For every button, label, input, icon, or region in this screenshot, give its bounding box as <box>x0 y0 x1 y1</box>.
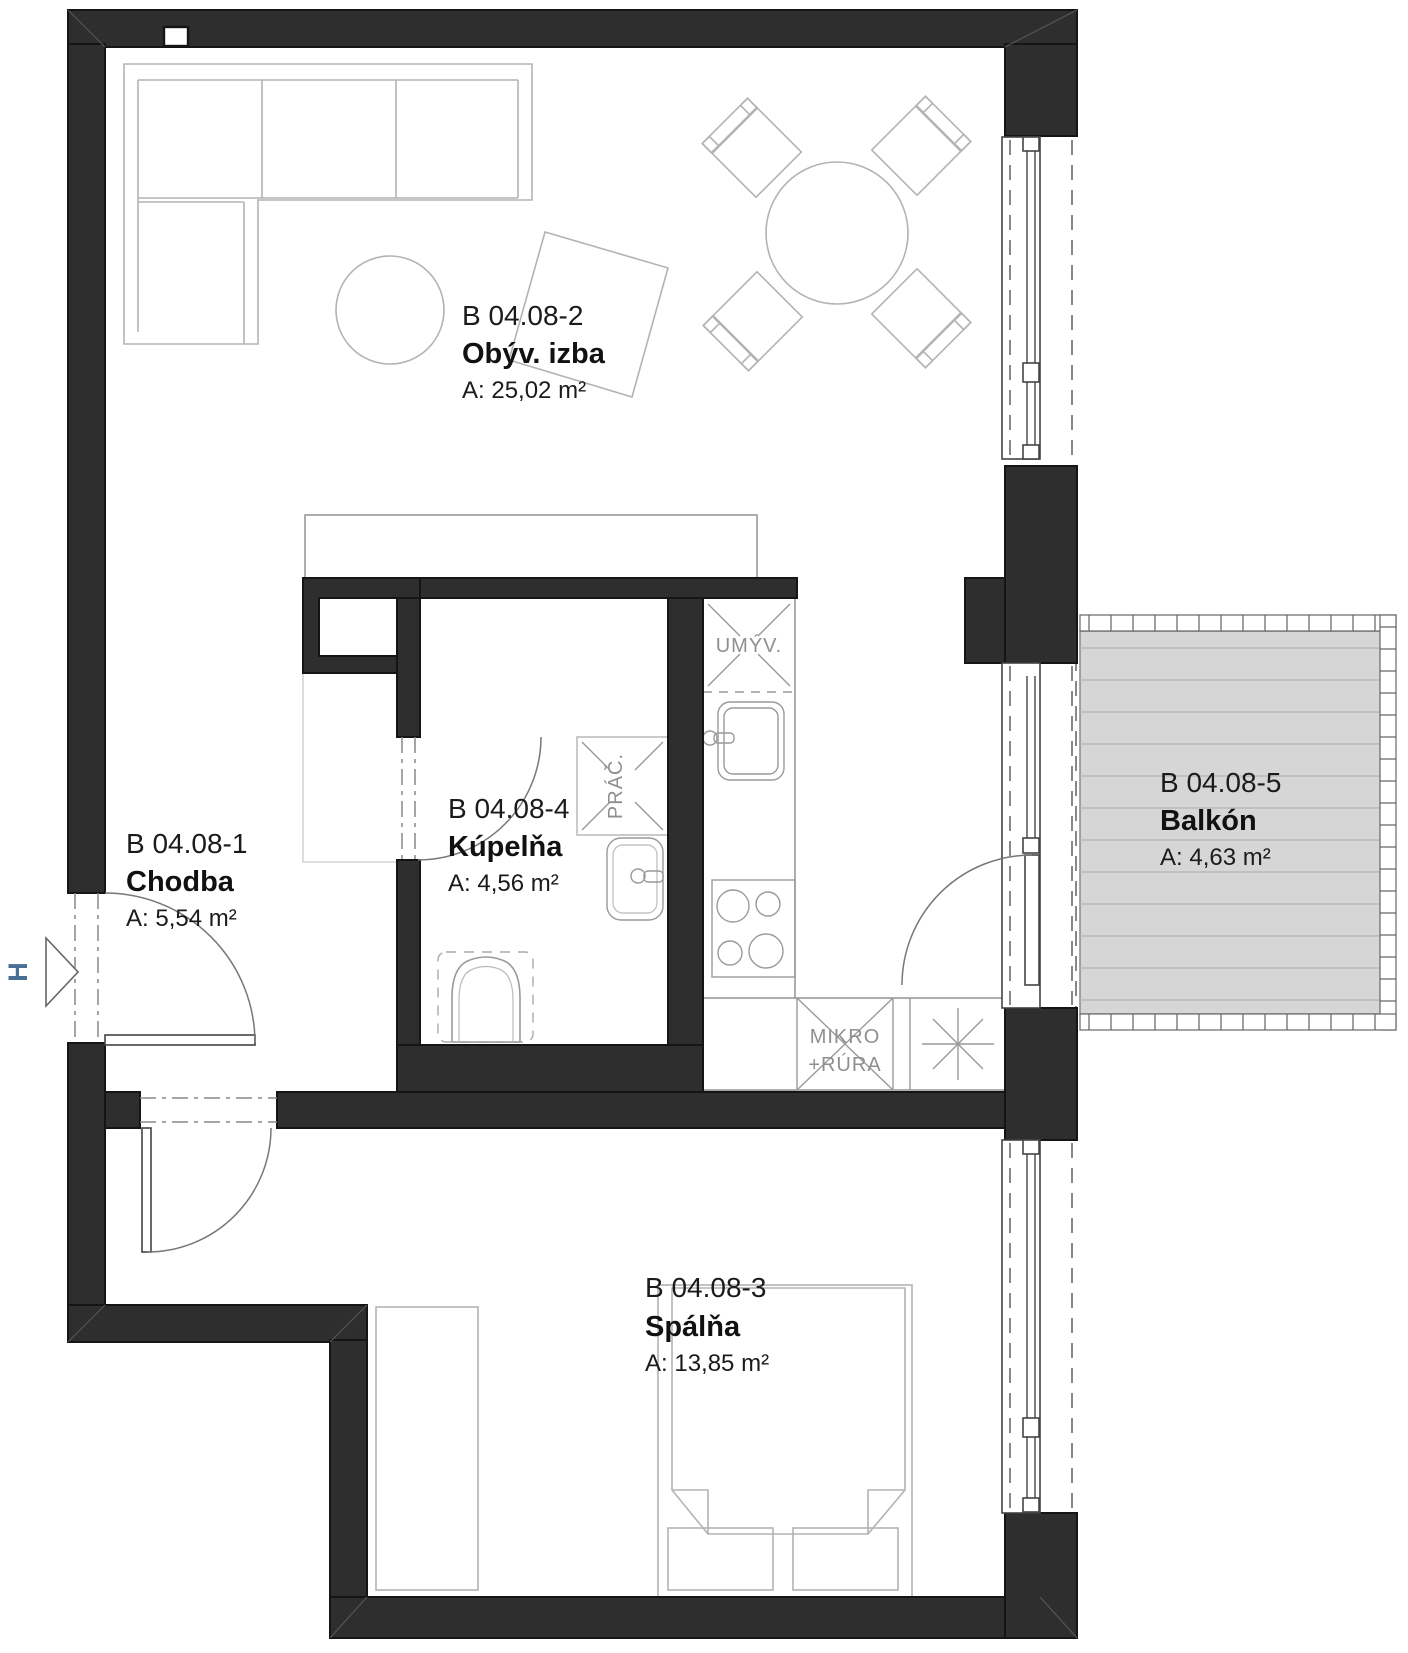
window-bedroom <box>1002 1140 1072 1513</box>
pillow <box>668 1528 773 1590</box>
balcony-railing-top <box>1080 615 1396 631</box>
bedroom-furniture <box>376 1285 912 1597</box>
room-id: B 04.08-3 <box>645 1272 766 1303</box>
room-label-bedroom: B 04.08-3 Spálňa A: 13,85 m² <box>645 1272 769 1377</box>
wall-bathroom-bottom <box>397 1045 703 1092</box>
balcony-railing-right <box>1380 615 1396 1030</box>
floor-plan: UMÝV. MIKRO +RÚRA <box>0 0 1408 1653</box>
door-entrance-leaf <box>105 1035 255 1045</box>
wall-bathroom-right <box>668 598 703 1092</box>
door-bedroom <box>140 1098 277 1252</box>
walls <box>68 10 1077 1638</box>
wall-left-lower <box>68 1043 105 1342</box>
kitchen-zone-line <box>303 673 397 862</box>
wall-right-c <box>1005 1008 1077 1140</box>
wall-miters <box>68 10 1077 1638</box>
balcony-railing-bottom <box>1080 1014 1396 1030</box>
wall-bottom <box>330 1597 1077 1638</box>
room-area: A: 4,63 m² <box>1160 844 1271 871</box>
wall-bathroom-left-a <box>397 598 420 737</box>
wall-bedroom-left <box>330 1340 367 1638</box>
room-label-living: B 04.08-2 Obýv. izba A: 25,02 m² <box>462 300 606 404</box>
wardrobe <box>376 1307 478 1590</box>
entrance-arrow-icon <box>46 938 78 1006</box>
wall-niche <box>164 27 188 46</box>
washing-machine-label: PRÁČ. <box>604 753 627 819</box>
floor-plan-svg: UMÝV. MIKRO +RÚRA <box>0 0 1408 1653</box>
room-id: B 04.08-2 <box>462 300 583 331</box>
room-label-bathroom: B 04.08-4 Kúpelňa A: 4,56 m² <box>448 793 569 897</box>
door-balcony-leaf <box>1025 855 1039 985</box>
room-id: B 04.08-1 <box>126 828 247 859</box>
washbasin <box>607 838 663 920</box>
entrance-marker: H <box>3 962 33 982</box>
room-name: Spálňa <box>645 1311 741 1343</box>
room-name: Balkón <box>1160 805 1257 837</box>
pillow <box>793 1528 898 1590</box>
wall-right-a <box>1005 44 1077 136</box>
door-bedroom-swing <box>147 1128 271 1252</box>
dining-chair <box>872 96 971 195</box>
wall-pilaster <box>965 578 1005 663</box>
door-bedroom-leaf <box>142 1128 151 1252</box>
dishwasher-label: UMÝV. <box>716 634 783 657</box>
wall-top <box>68 10 1077 47</box>
room-area: A: 5,54 m² <box>126 905 237 932</box>
room-id: B 04.08-4 <box>448 793 569 824</box>
washing-machine: PRÁČ. <box>577 737 668 835</box>
microwave-label-line1: MIKRO <box>810 1026 881 1048</box>
wall-mid <box>277 1092 1005 1128</box>
wall-hall-bottom <box>68 1305 367 1342</box>
wall-right-d <box>1005 1513 1077 1638</box>
door-balcony <box>902 663 1072 1008</box>
dining-set <box>702 96 970 370</box>
room-name: Obýv. izba <box>462 338 606 370</box>
room-name: Kúpelňa <box>448 831 563 863</box>
room-area: A: 13,85 m² <box>645 1350 769 1377</box>
side-table <box>336 256 444 364</box>
window-living-room <box>1002 137 1072 462</box>
toilet <box>438 952 533 1042</box>
room-id: B 04.08-5 <box>1160 767 1281 798</box>
kitchen-counter-upper <box>305 515 757 578</box>
room-name: Chodba <box>126 866 235 898</box>
shaft-opening <box>319 598 397 656</box>
room-label-hallway: B 04.08-1 Chodba A: 5,54 m² <box>126 828 247 932</box>
wall-door-stub <box>105 1092 140 1128</box>
room-area: A: 25,02 m² <box>462 377 586 404</box>
room-area: A: 4,56 m² <box>448 870 559 897</box>
microwave-label-line2: +RÚRA <box>808 1053 881 1076</box>
dining-chair <box>703 272 802 371</box>
wall-left-upper <box>68 44 105 893</box>
dining-table <box>766 162 908 304</box>
wall-right-b <box>1005 466 1077 663</box>
